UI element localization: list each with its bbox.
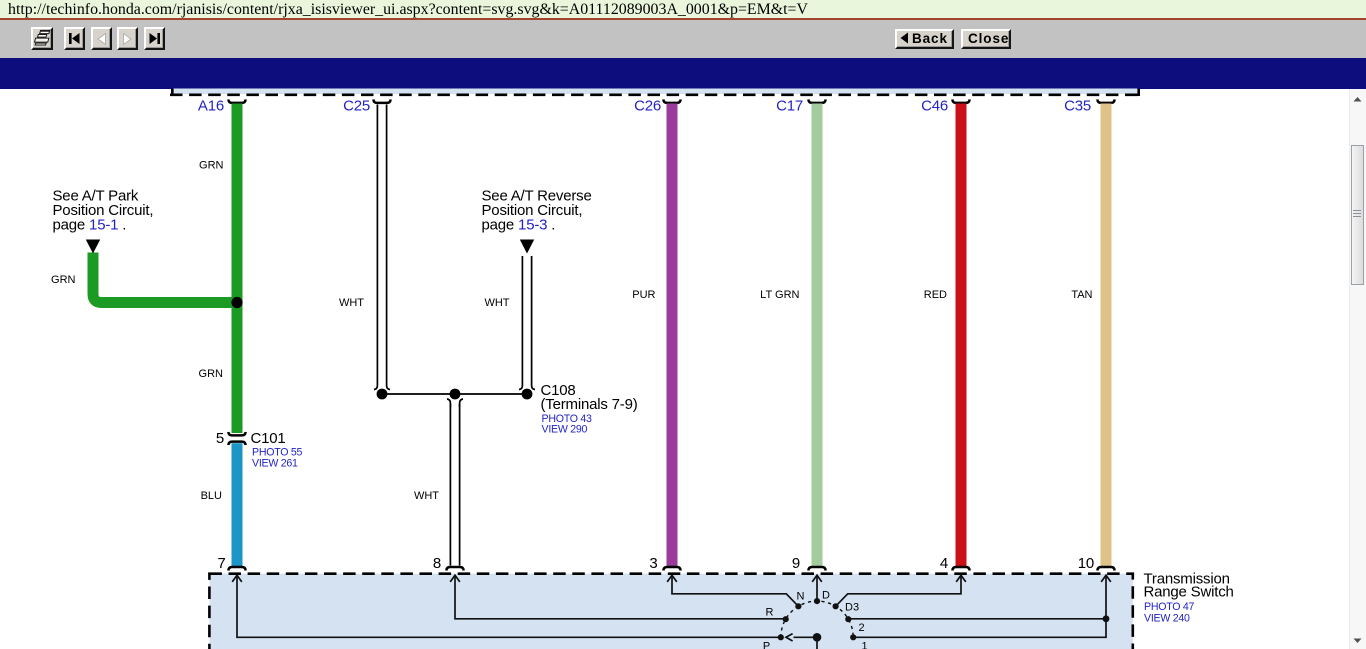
svg-text:N: N [797, 591, 805, 603]
svg-text:(Terminals 7-9): (Terminals 7-9) [541, 396, 638, 413]
svg-text:TAN: TAN [1071, 289, 1092, 301]
svg-text:PUR: PUR [632, 289, 655, 301]
svg-text:GRN: GRN [51, 274, 76, 286]
svg-text:C46: C46 [921, 98, 948, 115]
svg-text:WHT: WHT [414, 490, 439, 502]
svg-text:C25: C25 [343, 98, 370, 115]
svg-text:C35: C35 [1064, 98, 1091, 115]
svg-text:2: 2 [859, 622, 865, 634]
svg-text:D3: D3 [845, 602, 859, 614]
svg-text:9: 9 [792, 555, 800, 572]
svg-text:VIEW 261: VIEW 261 [252, 458, 298, 470]
svg-text:P: P [763, 641, 770, 649]
svg-text:WHT: WHT [339, 297, 364, 309]
svg-text:10: 10 [1078, 555, 1094, 572]
svg-text:A16: A16 [198, 98, 224, 115]
svg-text:RED: RED [924, 289, 947, 301]
svg-text:GRN: GRN [199, 368, 224, 380]
svg-text:R: R [766, 607, 774, 619]
svg-text:5: 5 [216, 430, 224, 447]
svg-text:LT GRN: LT GRN [760, 289, 799, 301]
svg-text:GRN: GRN [199, 160, 224, 172]
svg-text:4: 4 [940, 555, 948, 572]
svg-text:1: 1 [862, 641, 868, 649]
svg-text:page 15-1 .: page 15-1 . [53, 217, 127, 234]
svg-text:VIEW 290: VIEW 290 [542, 423, 588, 435]
svg-text:C17: C17 [776, 98, 803, 115]
svg-text:page 15-3 .: page 15-3 . [482, 217, 556, 234]
svg-text:7: 7 [217, 555, 225, 572]
svg-text:VIEW 240: VIEW 240 [1144, 613, 1190, 625]
svg-text:WHT: WHT [484, 297, 509, 309]
svg-text:Range Switch: Range Switch [1144, 583, 1234, 600]
svg-text:PHOTO 55: PHOTO 55 [252, 447, 303, 459]
svg-text:C26: C26 [634, 98, 661, 115]
svg-text:PHOTO 47: PHOTO 47 [1144, 601, 1195, 613]
svg-text:BLU: BLU [201, 490, 222, 502]
svg-text:D: D [822, 590, 830, 602]
svg-text:C101: C101 [251, 430, 286, 447]
svg-text:8: 8 [433, 555, 441, 572]
svg-text:3: 3 [649, 555, 657, 572]
